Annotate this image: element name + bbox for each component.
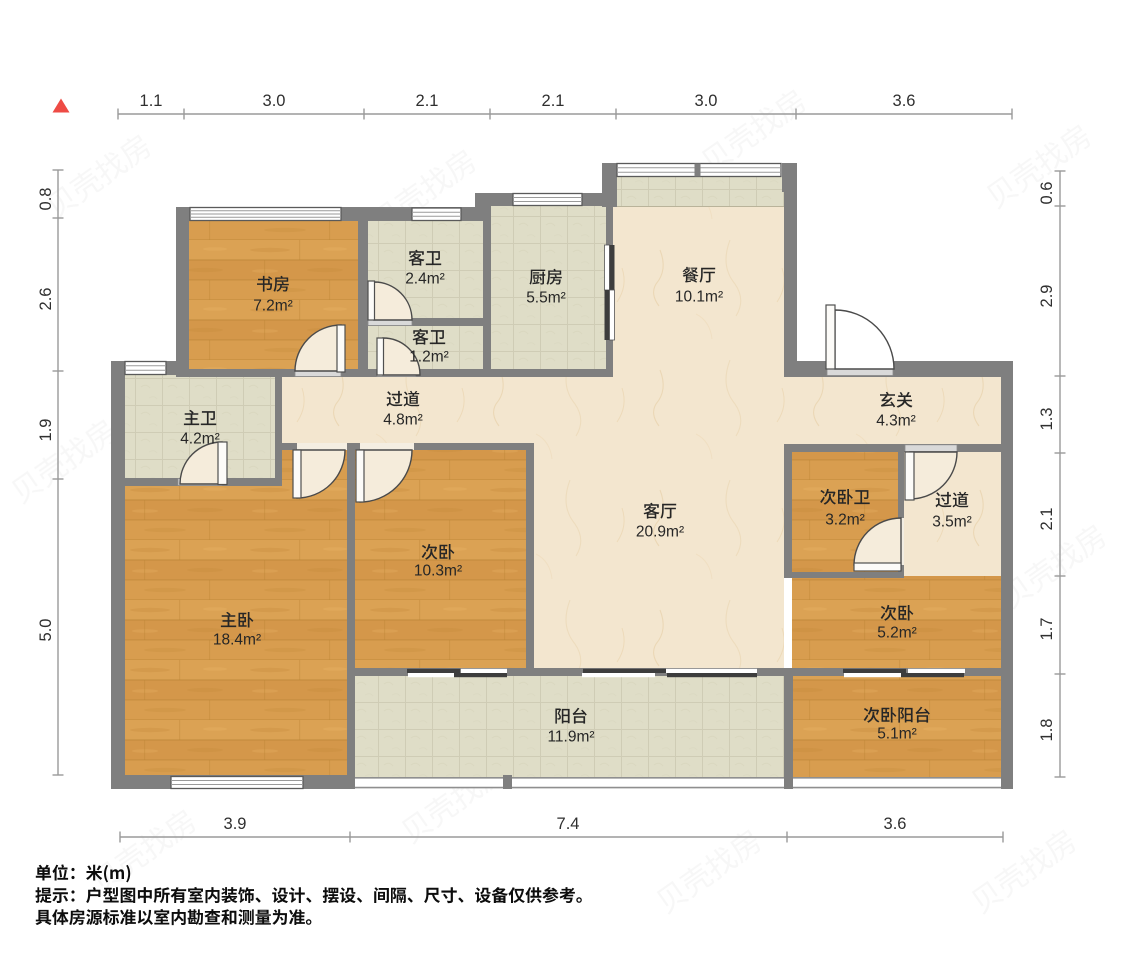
svg-text:3.9: 3.9 — [224, 815, 247, 833]
svg-text:3.0: 3.0 — [263, 92, 286, 110]
svg-text:1.7: 1.7 — [1038, 618, 1056, 641]
svg-text:2.1: 2.1 — [1038, 508, 1056, 531]
svg-text:4.2m²: 4.2m² — [180, 430, 220, 447]
svg-text:1.1: 1.1 — [140, 92, 163, 110]
svg-text:1.2m²: 1.2m² — [409, 348, 449, 365]
svg-text:10.1m²: 10.1m² — [675, 288, 723, 305]
svg-text:4.8m²: 4.8m² — [383, 411, 423, 428]
svg-text:5.1m²: 5.1m² — [877, 725, 917, 742]
svg-text:0.8: 0.8 — [37, 188, 55, 211]
svg-text:0.6: 0.6 — [1038, 182, 1056, 205]
svg-text:2.1: 2.1 — [416, 92, 439, 110]
svg-text:4.3m²: 4.3m² — [876, 412, 916, 429]
svg-text:3.6: 3.6 — [893, 92, 916, 110]
svg-text:2.1: 2.1 — [542, 92, 565, 110]
svg-text:3.2m²: 3.2m² — [825, 511, 865, 528]
svg-text:2.4m²: 2.4m² — [405, 270, 445, 287]
svg-text:7.2m²: 7.2m² — [253, 297, 293, 314]
svg-text:11.9m²: 11.9m² — [547, 728, 594, 745]
svg-text:5.2m²: 5.2m² — [877, 624, 917, 641]
svg-text:3.5m²: 3.5m² — [932, 513, 972, 530]
svg-text:2.6: 2.6 — [37, 288, 55, 311]
svg-text:7.4: 7.4 — [557, 815, 580, 833]
svg-text:2.9: 2.9 — [1038, 285, 1056, 308]
svg-text:10.3m²: 10.3m² — [414, 562, 462, 579]
svg-text:3.0: 3.0 — [695, 92, 718, 110]
svg-text:5.0: 5.0 — [37, 619, 55, 642]
svg-text:20.9m²: 20.9m² — [636, 523, 684, 540]
svg-text:1.9: 1.9 — [37, 419, 55, 442]
svg-text:1.3: 1.3 — [1038, 408, 1056, 431]
svg-text:18.4m²: 18.4m² — [213, 631, 261, 648]
svg-text:1.8: 1.8 — [1038, 719, 1056, 742]
svg-text:3.6: 3.6 — [884, 815, 907, 833]
svg-text:5.5m²: 5.5m² — [526, 289, 566, 306]
